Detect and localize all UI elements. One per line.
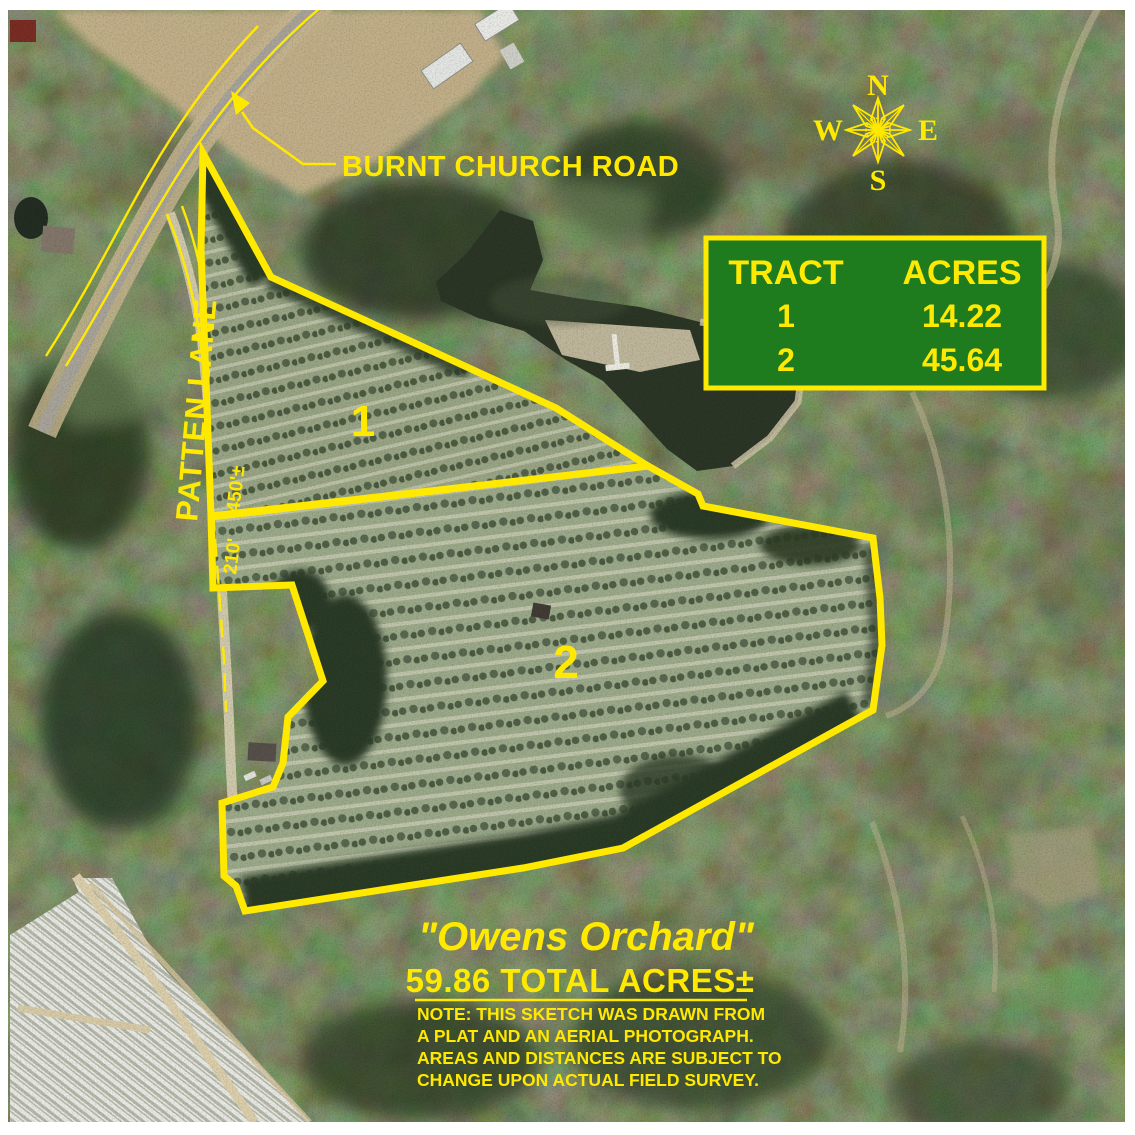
table-row2-tract: 2	[777, 342, 795, 378]
tract1-number: 1	[351, 397, 375, 446]
compass-south-label: S	[870, 164, 887, 197]
compass-east-label: E	[918, 114, 938, 147]
survey-flyer: BURNT CHURCH ROAD PATTEN LANE 450'± 210'…	[0, 0, 1135, 1135]
tract2-number: 2	[553, 636, 579, 688]
acreage-table: TRACT ACRES 1 14.22 2 45.64	[706, 238, 1044, 388]
dimension-210: 210'	[220, 537, 245, 576]
table-row2-acres: 45.64	[922, 342, 1002, 378]
table-header-acres: ACRES	[902, 254, 1021, 292]
note-line-2: A PLAT AND AN AERIAL PHOTOGRAPH.	[417, 1026, 754, 1046]
total-acres: 59.86 TOTAL ACRES±	[406, 962, 755, 999]
property-title: "Owens Orchard"	[418, 915, 755, 959]
table-row1-tract: 1	[777, 298, 795, 334]
survey-map: BURNT CHURCH ROAD PATTEN LANE 450'± 210'…	[0, 0, 1135, 1135]
note-line-1: NOTE: THIS SKETCH WAS DRAWN FROM	[417, 1004, 765, 1024]
compass-west-label: W	[813, 114, 843, 147]
table-row1-acres: 14.22	[922, 298, 1002, 334]
burnt-church-road-label: BURNT CHURCH ROAD	[342, 151, 679, 183]
table-header-tract: TRACT	[728, 254, 843, 292]
note-line-3: AREAS AND DISTANCES ARE SUBJECT TO	[417, 1048, 782, 1068]
note-line-4: CHANGE UPON ACTUAL FIELD SURVEY.	[417, 1070, 759, 1090]
compass-north-label: N	[867, 69, 889, 102]
